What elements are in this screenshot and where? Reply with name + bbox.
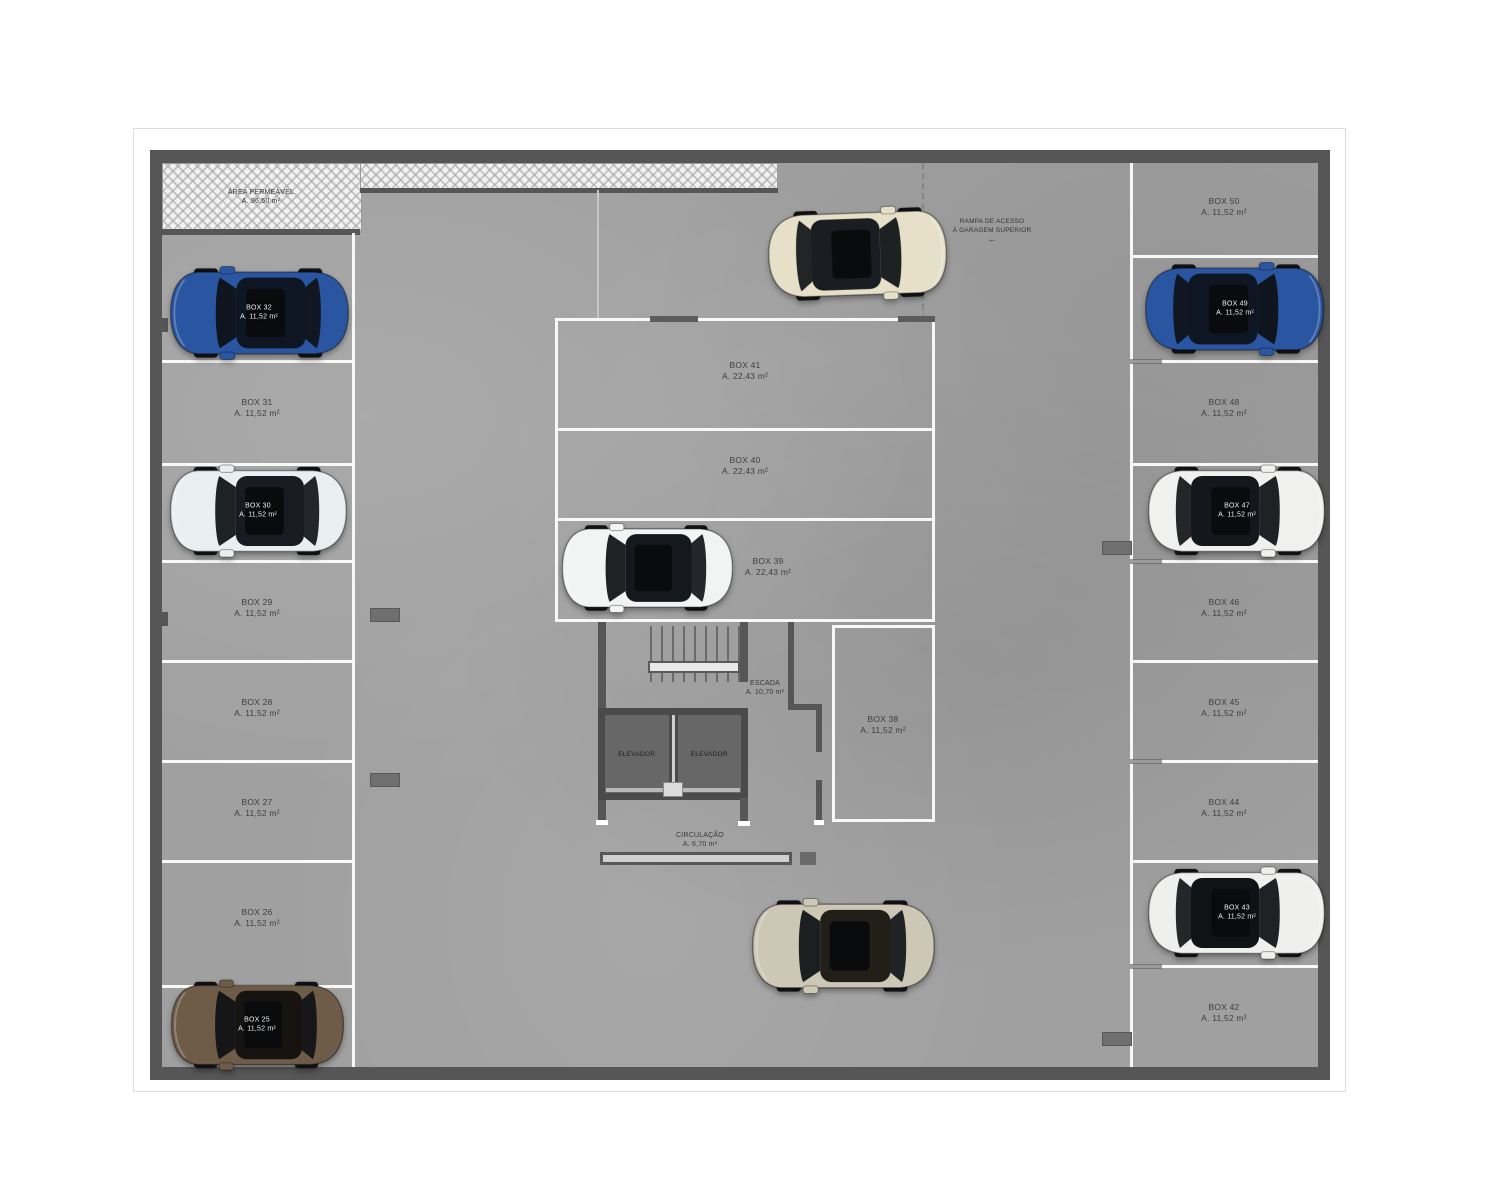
stairs-name: ESCADA (746, 679, 784, 688)
stall-box-number: BOX 48 (1201, 397, 1247, 408)
stairs-label: ESCADA A. 10,70 m² (746, 679, 784, 697)
stall-box-number: BOX 32 (240, 305, 278, 314)
stall-box-number: BOX 40 (722, 455, 768, 466)
stall-area: A. 11,52 m² (1216, 309, 1254, 318)
center-box-divider (555, 428, 935, 431)
stall-label: BOX 28 A. 11,52 m² (234, 697, 280, 719)
circulation-label: CIRCULAÇÃO A. 6,70 m² (676, 831, 724, 849)
stall-area: A. 22,43 m² (722, 371, 768, 382)
stall-area: A. 11,52 m² (1201, 408, 1247, 419)
stall-box-number: BOX 50 (1201, 196, 1247, 207)
stall-label: BOX 45 A. 11,52 m² (1201, 697, 1247, 719)
stall-label: BOX 48 A. 11,52 m² (1201, 397, 1247, 419)
stall-box-number: BOX 25 (238, 1017, 276, 1026)
walkway-end-block (800, 852, 816, 865)
car-stall-label: BOX 47 A. 11,52 m² (1218, 503, 1256, 520)
ramp-arrow-icon: ← (953, 235, 1032, 244)
permeable-area-name: ÁREA PERMEÁVEL (228, 188, 294, 197)
stall-area: A. 11,52 m² (860, 725, 906, 736)
stall-area: A. 11,52 m² (234, 708, 280, 719)
stall-area: A. 11,52 m² (1218, 913, 1256, 922)
wall-under-permeable (162, 229, 360, 235)
wall-end-cap (738, 821, 750, 826)
stall-label: BOX 31 A. 11,52 m² (234, 397, 280, 419)
car-top-view (558, 521, 736, 615)
wall-under-permeable-strip (360, 188, 778, 193)
corridor-wall (816, 704, 822, 752)
stall-label: BOX 44 A. 11,52 m² (1201, 797, 1247, 819)
column-pillar (370, 773, 400, 787)
stall-box-number: BOX 45 (1201, 697, 1247, 708)
center-box-label: BOX 38 A. 11,52 m² (860, 714, 906, 736)
stall-box-number: BOX 43 (1218, 905, 1256, 914)
stall-area: A. 11,52 m² (1201, 608, 1247, 619)
right-stall-line-vertical (1130, 163, 1133, 1067)
circulation-name: CIRCULAÇÃO (676, 831, 724, 840)
stall-label: BOX 26 A. 11,52 m² (234, 907, 280, 929)
stall-label: BOX 46 A. 11,52 m² (1201, 597, 1247, 619)
stall-label: BOX 42 A. 11,52 m² (1201, 1002, 1247, 1024)
elevator-call-panel (663, 782, 683, 797)
stall-area: A. 11,52 m² (1201, 808, 1247, 819)
permeable-area-label: ÁREA PERMEÁVEL A. 96,50 m² (228, 188, 294, 206)
stall-area: A. 11,52 m² (1218, 511, 1256, 520)
stall-area: A. 11,52 m² (234, 608, 280, 619)
stall-box-number: BOX 30 (239, 503, 277, 512)
stall-area: A. 11,52 m² (239, 511, 277, 520)
stairs-area: A. 10,70 m² (746, 688, 784, 697)
stall-box-number: BOX 46 (1201, 597, 1247, 608)
stall-area: A. 11,52 m² (234, 918, 280, 929)
stall-divider (162, 360, 352, 363)
stall-box-number: BOX 47 (1218, 503, 1256, 512)
stall-area: A. 22,43 m² (745, 567, 791, 578)
elevator-label: ELEVADOR (618, 751, 655, 758)
stair-hall-wall-right (740, 622, 748, 682)
stall-box-number: BOX 39 (745, 556, 791, 567)
stall-box-number: BOX 28 (234, 697, 280, 708)
stall-label: BOX 29 A. 11,52 m² (234, 597, 280, 619)
stall-box-number: BOX 44 (1201, 797, 1247, 808)
divider-tick (1130, 359, 1162, 364)
stairs-treads (650, 626, 742, 682)
stall-divider (162, 660, 352, 663)
car-stall-label: BOX 49 A. 11,52 m² (1216, 301, 1254, 318)
car-stall-label: BOX 43 A. 11,52 m² (1218, 905, 1256, 922)
stall-area: A. 11,52 m² (234, 808, 280, 819)
elevator-label: ELEVADOR (691, 751, 728, 758)
left-stall-line-vertical (352, 233, 355, 1067)
stall-label: BOX 27 A. 11,52 m² (234, 797, 280, 819)
stall-box-number: BOX 26 (234, 907, 280, 918)
stall-divider (162, 860, 352, 863)
divider-tick (1130, 559, 1162, 564)
wall-thin-vertical (597, 190, 599, 318)
car-top-view (763, 204, 952, 304)
stall-box-number: BOX 42 (1201, 1002, 1247, 1013)
stall-box-number: BOX 41 (722, 360, 768, 371)
corridor-wall (788, 622, 794, 710)
column-pillar (1102, 1032, 1132, 1046)
divider-tick (898, 316, 935, 322)
corridor-wall (816, 780, 822, 824)
stall-area: A. 11,52 m² (1201, 708, 1247, 719)
stall-area: A. 11,52 m² (1201, 207, 1247, 218)
stall-label: BOX 50 A. 11,52 m² (1201, 196, 1247, 218)
permeable-area-size: A. 96,50 m² (228, 197, 294, 206)
circulation-area: A. 6,70 m² (676, 840, 724, 849)
stall-box-number: BOX 31 (234, 397, 280, 408)
ramp-label-line1: RAMPA DE ACESSO (953, 218, 1032, 227)
divider-tick (1130, 759, 1162, 764)
column-pillar (370, 608, 400, 622)
divider-tick (650, 316, 698, 322)
wall-end-cap (814, 820, 824, 825)
stall-area: A. 11,52 m² (1201, 1013, 1247, 1024)
wall-top (150, 150, 1330, 163)
column-pillar (1102, 541, 1132, 555)
center-box-label: BOX 39 A. 22,43 m² (745, 556, 791, 578)
wall-end-cap (596, 820, 608, 825)
stall-box-number: BOX 29 (234, 597, 280, 608)
wall-stub-left-2 (150, 612, 168, 626)
stall-divider (1133, 255, 1318, 258)
circulation-walkway (600, 852, 792, 865)
elevator-cell: ELEVADOR (678, 715, 742, 793)
stall-area: A. 11,52 m² (234, 408, 280, 419)
elevator-cell: ELEVADOR (605, 715, 669, 793)
car-stall-label: BOX 25 A. 11,52 m² (238, 1017, 276, 1034)
stall-box-number: BOX 49 (1216, 301, 1254, 310)
car-stall-label: BOX 30 A. 11,52 m² (239, 503, 277, 520)
stall-divider (162, 560, 352, 563)
stall-box-number: BOX 38 (860, 714, 906, 725)
stall-box-number: BOX 27 (234, 797, 280, 808)
car-stall-label: BOX 32 A. 11,52 m² (240, 305, 278, 322)
divider-tick (1130, 964, 1162, 969)
stall-divider (1133, 660, 1318, 663)
car-top-view (748, 898, 938, 994)
stairs-handrail (648, 661, 740, 673)
stall-divider (1133, 860, 1318, 863)
ramp-label: RAMPA DE ACESSO À GARAGEM SUPERIOR ← (953, 218, 1032, 244)
stall-divider (162, 760, 352, 763)
stall-area: A. 11,52 m² (240, 313, 278, 322)
stall-area: A. 22,43 m² (722, 466, 768, 477)
center-box-label: BOX 41 A. 22,43 m² (722, 360, 768, 382)
stall-area: A. 11,52 m² (238, 1025, 276, 1034)
center-box-label: BOX 40 A. 22,43 m² (722, 455, 768, 477)
parking-floor-plan: { "areas": { "permeable": {"name": "ÁREA… (0, 0, 1500, 1190)
